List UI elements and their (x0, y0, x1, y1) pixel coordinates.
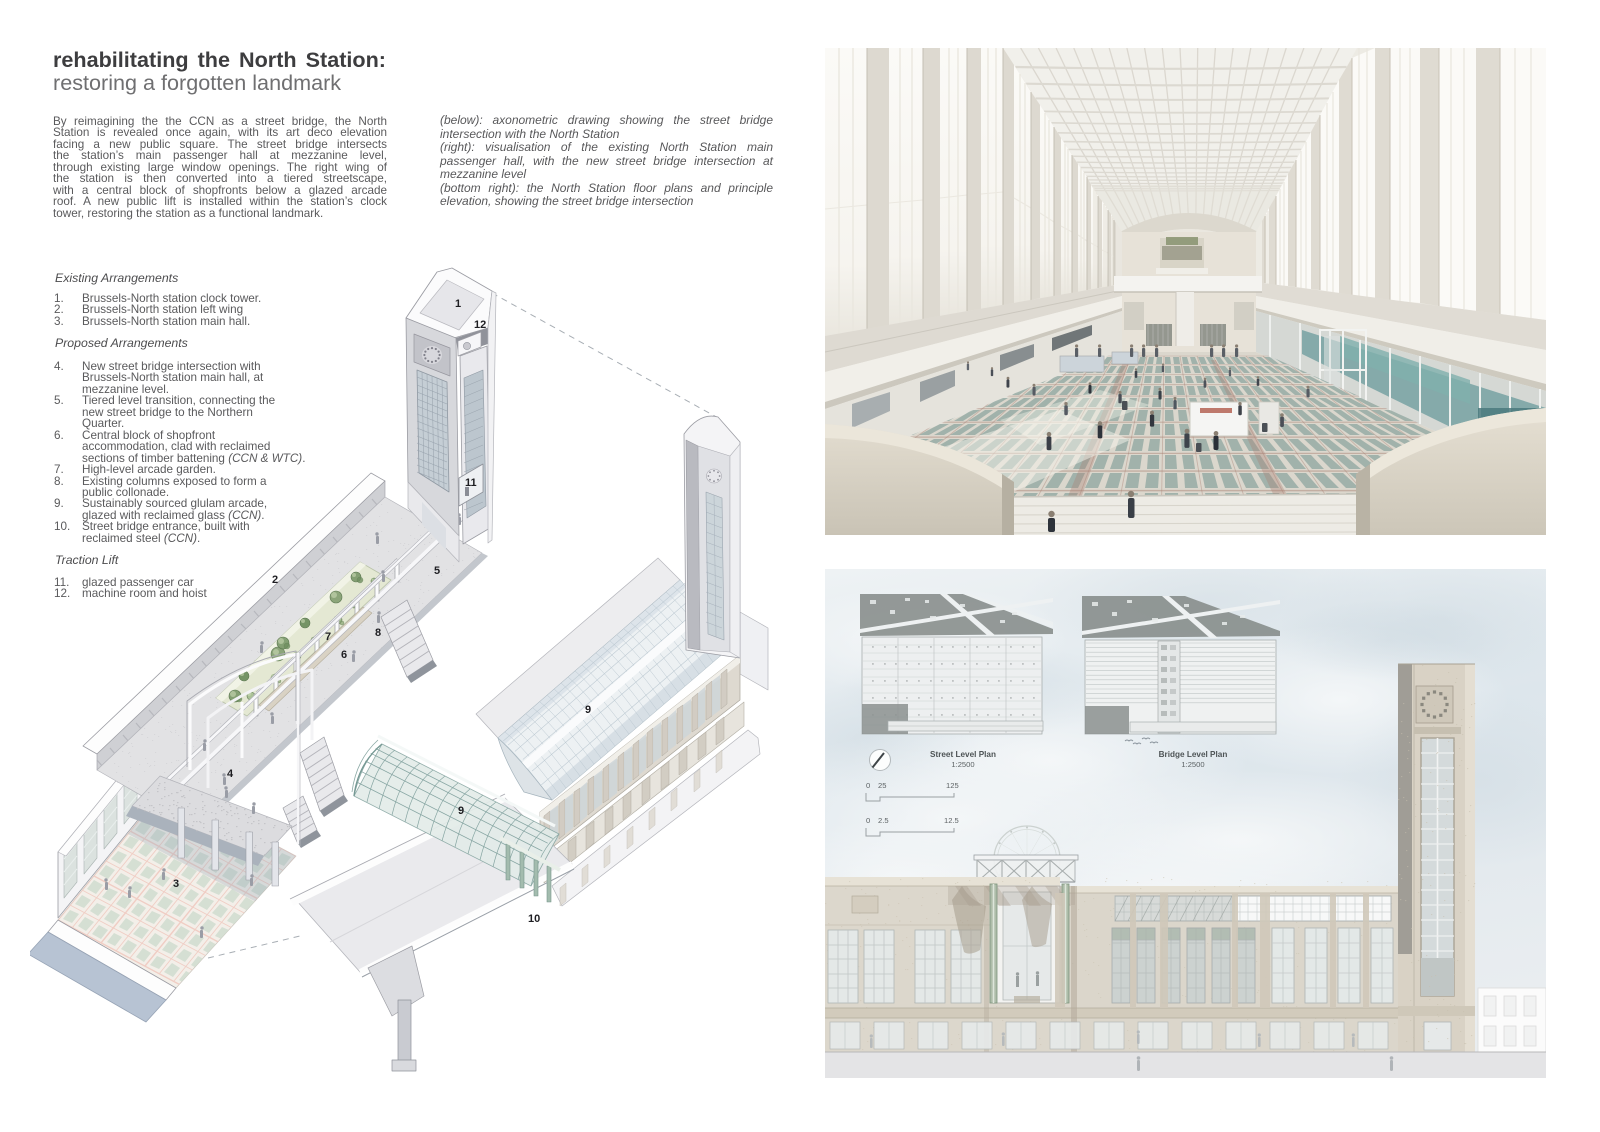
svg-text:1:2500: 1:2500 (1181, 760, 1204, 769)
svg-text:12: 12 (474, 319, 486, 331)
svg-text:4: 4 (227, 768, 234, 780)
svg-text:12.5: 12.5 (944, 816, 959, 825)
svg-text:3: 3 (173, 878, 179, 890)
svg-text:125: 125 (946, 781, 959, 790)
svg-text:0: 0 (866, 781, 870, 790)
svg-text:7: 7 (325, 631, 331, 643)
svg-text:8: 8 (375, 627, 381, 639)
svg-text:10: 10 (528, 913, 540, 925)
svg-text:1: 1 (455, 298, 461, 310)
svg-text:25: 25 (878, 781, 886, 790)
svg-text:6: 6 (341, 649, 347, 661)
svg-text:9: 9 (585, 704, 591, 716)
svg-text:2.5: 2.5 (878, 816, 889, 825)
svg-text:Bridge Level Plan: Bridge Level Plan (1159, 750, 1228, 759)
svg-text:0: 0 (866, 816, 870, 825)
svg-text:11: 11 (465, 477, 477, 489)
svg-text:9: 9 (458, 805, 464, 817)
svg-text:5: 5 (434, 565, 440, 577)
svg-text:1:2500: 1:2500 (951, 760, 974, 769)
svg-text:Street Level Plan: Street Level Plan (930, 750, 996, 759)
svg-text:2: 2 (272, 574, 278, 586)
